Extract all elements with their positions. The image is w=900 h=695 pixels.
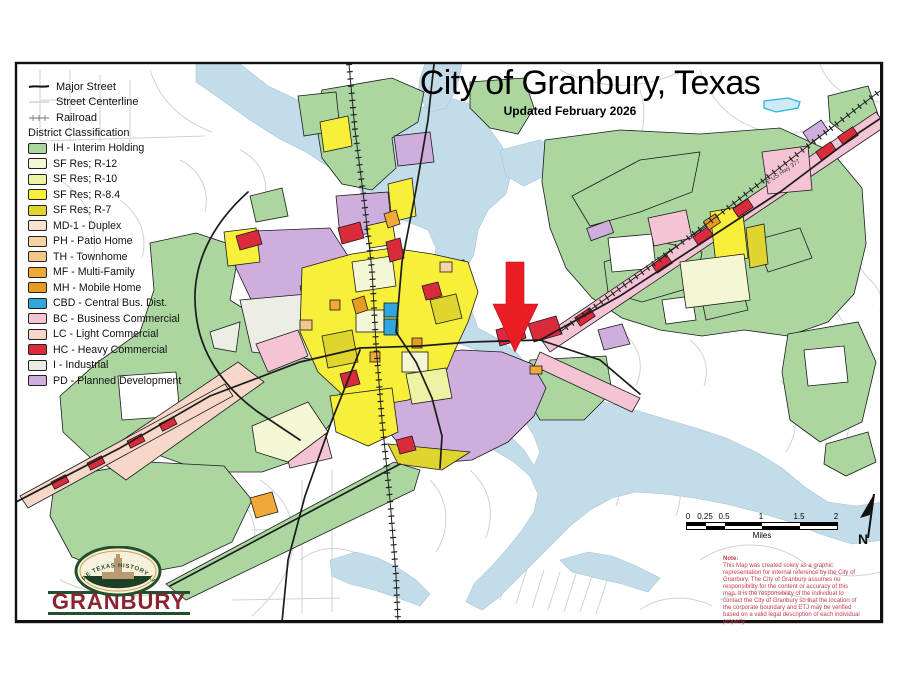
- disclaimer-note: Note: This Map was created solely as a g…: [723, 556, 863, 626]
- legend-item: TH - Townhome: [28, 249, 181, 265]
- legend-item: CBD - Central Bus. Dist.: [28, 296, 181, 312]
- north-label: N: [858, 531, 868, 547]
- legend-item: PD - Planned Development: [28, 373, 181, 389]
- swatch-i: [28, 360, 47, 371]
- map-title: City of Granbury, Texas: [400, 64, 780, 103]
- swatch-mh: [28, 282, 47, 293]
- swatch-bc: [28, 313, 47, 324]
- major-street-line-icon: [28, 82, 50, 92]
- swatch-lc: [28, 329, 47, 340]
- legend-item: IH - Interim Holding: [28, 141, 181, 157]
- legend-item: MH - Mobile Home: [28, 280, 181, 296]
- swatch-mf: [28, 267, 47, 278]
- swatch-ph: [28, 236, 47, 247]
- legend: Major Street Street Centerline Railroad …: [28, 79, 181, 389]
- swatch-pd: [28, 375, 47, 386]
- legend-item: HC - Heavy Commercial: [28, 342, 181, 358]
- scale-tick-labels: 0 0.25 0.5 1 1.5 2: [686, 512, 838, 522]
- swatch-ih: [28, 143, 47, 154]
- legend-railroad: Railroad: [28, 110, 181, 126]
- swatch-th: [28, 251, 47, 262]
- legend-item: MD-1 - Duplex: [28, 218, 181, 234]
- scale-bar: 0 0.25 0.5 1 1.5 2 Miles: [686, 512, 838, 540]
- legend-item: MF - Multi-Family: [28, 265, 181, 281]
- swatch-md1: [28, 220, 47, 231]
- legend-item: SF Res; R-8.4: [28, 187, 181, 203]
- swatch-hc: [28, 344, 47, 355]
- legend-street-centerline: Street Centerline: [28, 95, 181, 111]
- street-centerline-line-icon: [28, 97, 50, 107]
- note-body: This Map was created solely as a graphic…: [723, 563, 860, 625]
- legend-section-header: District Classification: [28, 126, 181, 141]
- swatch-cbd: [28, 298, 47, 309]
- legend-item: PH - Patio Home: [28, 234, 181, 250]
- courthouse-base-icon: [102, 572, 134, 579]
- legend-item: SF Res; R-10: [28, 172, 181, 188]
- north-arrow: N: [850, 486, 890, 552]
- legend-item: I - Industrial: [28, 358, 181, 374]
- legend-item: BC - Business Commercial: [28, 311, 181, 327]
- swatch-r7: [28, 205, 47, 216]
- legend-item: LC - Light Commercial: [28, 327, 181, 343]
- note-heading: Note:: [723, 556, 863, 563]
- railroad-line-icon: [28, 113, 50, 123]
- swatch-r10: [28, 174, 47, 185]
- scale-bar-graphic: [686, 522, 838, 530]
- courthouse-dome-icon: [116, 554, 120, 559]
- legend-major-street: Major Street: [28, 79, 181, 95]
- map-subtitle: Updated February 2026: [400, 104, 740, 118]
- map-page: E US Hwy 377 City of Granbury, Texas Upd…: [0, 0, 900, 695]
- swatch-r84: [28, 189, 47, 200]
- scale-unit-label: Miles: [686, 531, 838, 540]
- legend-item: SF Res; R-7: [28, 203, 181, 219]
- swatch-r12: [28, 158, 47, 169]
- granbury-logo: GRANBURY WHERE TEXAS HISTORY LIVES: [40, 546, 198, 620]
- legend-item: SF Res; R-12: [28, 156, 181, 172]
